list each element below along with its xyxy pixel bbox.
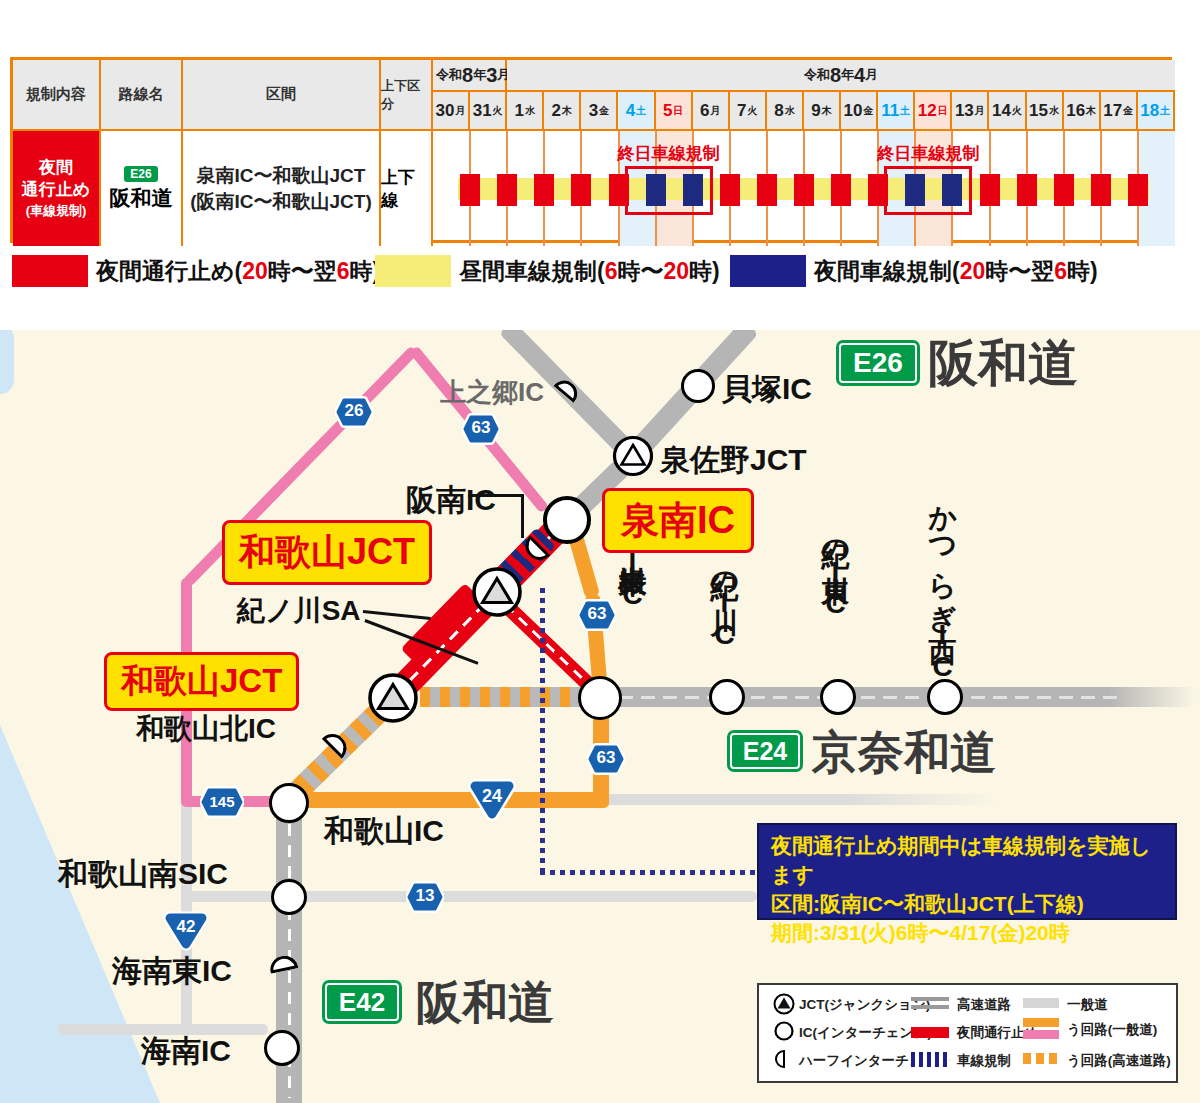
- wakayama-jct-highlight-label: 和歌山JCT: [222, 520, 432, 585]
- date-cell-13: 13月: [952, 92, 989, 131]
- hannan-pointer-line: [521, 494, 524, 538]
- izumisano-label: 泉佐野JCT: [660, 440, 807, 481]
- route-24-badge: 24: [467, 778, 517, 822]
- wakayama-ic-label: 和歌山IC: [324, 811, 444, 852]
- date-cell-6: 6月: [693, 92, 730, 131]
- night-closure-block: [794, 174, 814, 206]
- local-road-r13: [300, 891, 757, 902]
- wakayama-ic-icon: [269, 783, 309, 823]
- wakayama-minami-label: 和歌山南SIC: [58, 854, 228, 895]
- route-13-badge: 13: [406, 880, 444, 914]
- e24-title: 京奈和道: [812, 722, 996, 784]
- kaizuka-ic-icon: [681, 369, 715, 403]
- schedule-table: 規制内容 路線名 区間 上下区分 令和8年3月 令和8年4月 30月31火1水2…: [10, 57, 1172, 243]
- ic-icon: [774, 1021, 794, 1041]
- night-closure-block: [497, 174, 517, 206]
- header-route: 路線名: [101, 60, 183, 131]
- route-map: 26 63 63 63 145 13 24 42: [0, 330, 1200, 1103]
- header-regulation: 規制内容: [13, 60, 101, 131]
- night-closure-block: [1017, 174, 1037, 206]
- header-section: 区間: [183, 60, 381, 131]
- night-closure-block: [757, 174, 777, 206]
- night-closure-block: [571, 174, 591, 206]
- kinokawa-sa-pointer-line: [363, 610, 431, 620]
- day-lane-swatch: [375, 255, 451, 287]
- date-cell-2: 2木: [544, 92, 581, 131]
- date-cell-7: 7火: [730, 92, 767, 131]
- allday-regulation-label: 終日車線規制: [589, 142, 749, 165]
- night-closure-block: [1128, 174, 1148, 206]
- legend-night-lane: 夜間車線規制(20時〜翌6時): [730, 255, 1098, 287]
- kinokawa-higashi-ic-icon: [820, 679, 856, 715]
- lane-regulation-swatch: [911, 1052, 949, 1067]
- kainan-ic-icon: [264, 1030, 300, 1066]
- jct-icon: [773, 993, 795, 1015]
- e26-badge: E26: [836, 340, 920, 386]
- iwadene-ic-icon: [578, 676, 622, 720]
- e42-badge: E42: [322, 980, 402, 1024]
- date-cell-30: 30月: [433, 92, 470, 131]
- night-closure-block: [1091, 174, 1111, 206]
- e26-mini-badge: E26: [124, 166, 157, 182]
- callout-dotted-horizontal: [540, 870, 757, 875]
- date-cell-15: 15水: [1027, 92, 1064, 131]
- date-cell-18: 18土: [1138, 92, 1175, 131]
- roadwork-notice: 規制内容 路線名 区間 上下区分 令和8年3月 令和8年4月 30月31火1水2…: [0, 0, 1200, 1103]
- kainan-higashi-label: 海南東IC: [112, 951, 232, 992]
- wakayama-minami-sic-icon: [271, 879, 307, 915]
- route-26-badge: 26: [335, 395, 373, 429]
- water-sliver: [0, 330, 14, 394]
- hannan-label: 阪南IC: [406, 480, 496, 521]
- month-april: 令和8年4月: [507, 60, 1175, 92]
- legend-day-lane: 昼間車線規制(6時〜20時): [375, 255, 720, 287]
- date-cell-11: 11土: [878, 92, 915, 131]
- e24-badge: E24: [727, 730, 803, 772]
- night-closure-block: [534, 174, 554, 206]
- kinokawa-higashi-label: 紀の川東IC: [821, 520, 849, 620]
- allday-regulation-label: 終日車線規制: [848, 142, 1008, 165]
- kainan-label: 海南IC: [141, 1031, 231, 1072]
- month-march: 令和8年3月: [433, 60, 507, 92]
- detour-orange-road: [285, 792, 609, 808]
- detour-local-orange-swatch: [1023, 1018, 1059, 1027]
- sennan-ic-icon: [543, 496, 591, 544]
- map-legend-box: JCT(ジャンクション) IC(インターチェンジ) ハーフインターチェンジ 高速…: [757, 983, 1178, 1083]
- route-63-badge: 63: [587, 742, 625, 776]
- local-road-swatch: [1023, 998, 1059, 1008]
- date-cell-17: 17金: [1101, 92, 1138, 131]
- night-closure-swatch: [12, 255, 88, 287]
- date-cell-12: 12日: [915, 92, 952, 131]
- kinokawa-sa-label: 紀ノ川SA: [237, 592, 361, 630]
- date-cell-16: 16木: [1064, 92, 1101, 131]
- e26-title: 阪和道: [928, 330, 1078, 397]
- direction-cell: 上下線: [381, 131, 433, 246]
- date-cell-3: 3金: [581, 92, 618, 131]
- highway-swatch: [911, 997, 949, 1009]
- wakayama-jct-highlight-label: 和歌山JCT: [104, 652, 299, 711]
- date-cell-1: 1水: [507, 92, 544, 131]
- detour-highway-striped: [420, 687, 588, 707]
- kaminogo-label: 上之郷IC: [440, 375, 544, 410]
- date-cell-31: 31火: [470, 92, 507, 131]
- kaizuka-label: 貝塚IC: [722, 369, 812, 410]
- legend-night-closure: 夜間通行止め(20時〜翌6時): [12, 255, 380, 287]
- section-cell: 泉南IC〜和歌山JCT (阪南IC〜和歌山JCT): [183, 131, 381, 246]
- route-63-badge: 63: [462, 412, 500, 446]
- izumisano-jct-icon: [612, 435, 654, 477]
- date-cell-9: 9木: [804, 92, 841, 131]
- kinokawa-ic-icon: [709, 679, 745, 715]
- route-cell: E26 阪和道: [101, 131, 183, 246]
- night-closure-block: [831, 174, 851, 206]
- detour-local-pink-swatch: [1023, 1030, 1059, 1039]
- night-closure-block: [460, 174, 480, 206]
- route-42-badge: 42: [162, 910, 210, 952]
- closure-swatch: [911, 1027, 949, 1038]
- date-cell-5: 5日: [656, 92, 693, 131]
- water-area: [0, 725, 160, 1103]
- allday-regulation-box: [625, 166, 713, 215]
- night-closure-block: [720, 174, 740, 206]
- route-63-badge: 63: [578, 598, 616, 632]
- e24-keinawa-highway: [575, 687, 1195, 707]
- date-cell-8: 8水: [767, 92, 804, 131]
- e42-title: 阪和道: [416, 972, 554, 1034]
- wakayama-jct-upper-icon: [471, 566, 523, 618]
- wakayama-kita-label: 和歌山北IC: [136, 710, 276, 748]
- local-road-fade: [605, 794, 1000, 805]
- route-name: 阪和道: [110, 184, 173, 212]
- kinokawa-label: 紀の川IC: [710, 552, 738, 651]
- night-closure-block: [1054, 174, 1074, 206]
- iwadene-label: 岩出根来IC: [618, 543, 646, 611]
- date-cell-14: 14火: [989, 92, 1026, 131]
- wakayama-jct-lower-icon: [367, 672, 419, 724]
- half-ic-icon: [774, 1049, 794, 1069]
- route-145-badge: 145: [200, 785, 244, 819]
- gantt-chart: 終日車線規制終日車線規制: [433, 131, 1175, 246]
- katsuragi-nishi-ic-icon: [927, 679, 963, 715]
- header-direction: 上下区分: [381, 60, 433, 131]
- date-row: 30月31火1水2木3金4土5日6月7火8水9木10金11土12日13月14火1…: [433, 92, 1175, 131]
- date-cell-10: 10金: [841, 92, 878, 131]
- katsuragi-nishi-label: かつらぎ西IC: [928, 486, 956, 683]
- night-lane-swatch: [730, 255, 806, 287]
- callout-dotted-vertical: [540, 588, 545, 875]
- date-cell-4: 4土: [618, 92, 655, 131]
- regulation-cell: 夜間 通行止め (車線規制): [13, 131, 101, 246]
- night-closure-block: [980, 174, 1000, 206]
- detour-highway-swatch: [1023, 1053, 1059, 1064]
- allday-regulation-box: [884, 166, 972, 215]
- closure-info-box: 夜間通行止め期間中は車線規制を実施します 区間:阪南IC〜和歌山JCT(上下線)…: [757, 823, 1177, 920]
